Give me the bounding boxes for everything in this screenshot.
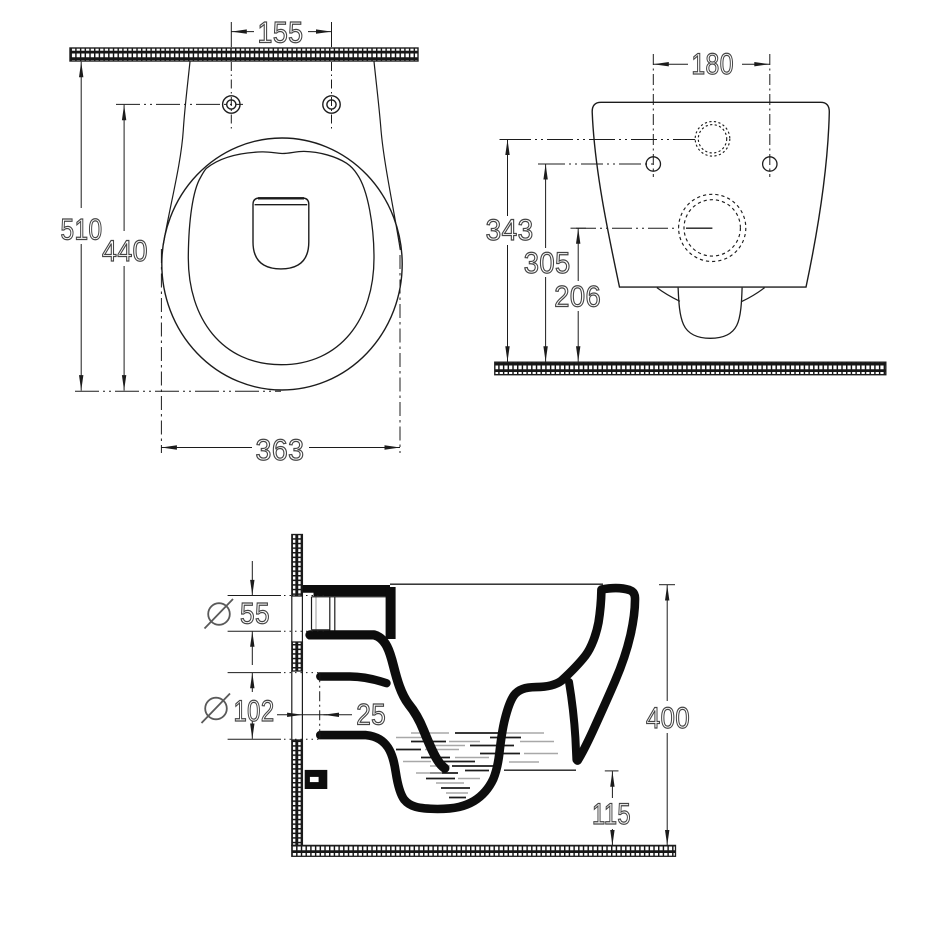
svg-text:115: 115	[592, 798, 631, 831]
svg-text:343: 343	[486, 214, 534, 247]
svg-text:25: 25	[356, 699, 386, 732]
svg-text:206: 206	[554, 281, 601, 314]
svg-text:102: 102	[234, 695, 275, 728]
svg-text:155: 155	[258, 17, 304, 50]
svg-text:400: 400	[646, 702, 690, 735]
svg-text:440: 440	[102, 235, 148, 268]
svg-text:180: 180	[691, 48, 734, 81]
svg-text:510: 510	[61, 214, 103, 247]
svg-text:55: 55	[240, 598, 270, 631]
svg-text:305: 305	[524, 247, 571, 280]
svg-text:363: 363	[256, 434, 305, 467]
